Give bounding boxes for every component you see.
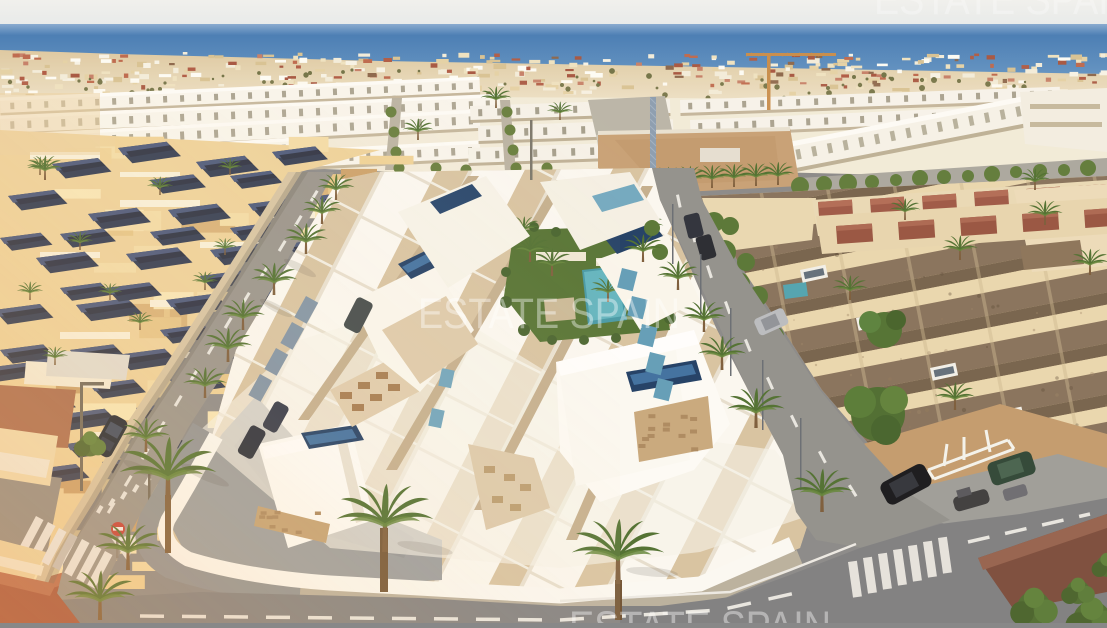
svg-text:ESTATE SPAIN: ESTATE SPAIN [418, 290, 680, 338]
svg-text:ESTATE SPAIN: ESTATE SPAIN [569, 603, 831, 623]
svg-text:ESTATE SPAIN: ESTATE SPAIN [874, 0, 1107, 24]
